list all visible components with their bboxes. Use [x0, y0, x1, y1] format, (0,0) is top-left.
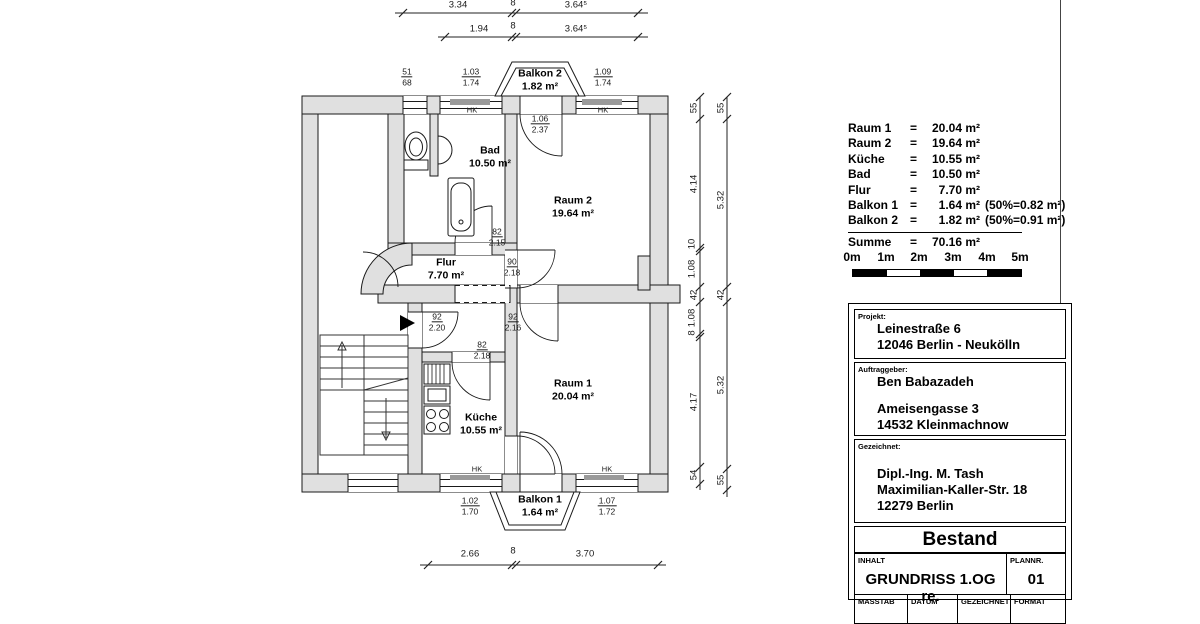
room-label-kueche: Küche10.55 m² [460, 411, 502, 436]
opening-label: 1.091.74 [594, 66, 613, 87]
dim-label: 3.64⁵ [565, 0, 587, 11]
dim-label: 54 [689, 470, 700, 481]
inhalt-cell: INHALT GRUNDRISS 1.OG re. [854, 553, 1007, 595]
sink-icon [438, 136, 452, 164]
hk-label: HK [467, 106, 477, 115]
legend-row: Balkon 1=1.64 m²(50%=0.82 m²) [848, 198, 1065, 213]
room-label-raum1: Raum 120.04 m² [552, 377, 594, 402]
dim-label: 55 [716, 103, 727, 114]
auftraggeber-line: Ameisengasse 3 [855, 401, 1065, 417]
footer-cell: MASSTAB [854, 594, 908, 624]
dim-label: 1.08 [687, 260, 698, 279]
opening-label: 1.031.74 [462, 66, 481, 87]
radiator [582, 99, 622, 105]
sheet-frame-line [1060, 0, 1061, 303]
staircase [320, 335, 408, 455]
opening-label: 822.15 [489, 226, 506, 247]
gezeichnet-line: 12279 Berlin [855, 498, 1065, 514]
opening-label: 1.071.72 [598, 495, 617, 516]
dim-label: 1.94 [470, 24, 489, 35]
room-label-bad: Bad10.50 m² [469, 144, 511, 169]
radiator [450, 99, 490, 105]
bath-fixtures [404, 132, 474, 236]
room-label-raum2: Raum 219.64 m² [552, 194, 594, 219]
scale-tick-label: 1m [877, 250, 894, 264]
footer-cell: GEZEICHNET [957, 594, 1011, 624]
status-label: Bestand [854, 526, 1066, 553]
dim-label: 10 [687, 239, 698, 250]
opening-label: 1.062.37 [531, 113, 550, 134]
dim-label: 3.64⁵ [565, 24, 587, 35]
kitchen-fixtures [424, 364, 450, 434]
legend-row: Bad=10.50 m² [848, 167, 1065, 182]
room-label-balkon1: Balkon 11.64 m² [518, 493, 562, 518]
legend-row: Raum 1=20.04 m² [848, 121, 1065, 136]
hk-label: HK [602, 465, 612, 474]
projekt-label: Projekt: [855, 310, 1065, 321]
area-legend: Raum 1=20.04 m² Raum 2=19.64 m² Küche=10… [848, 121, 1065, 250]
gezeichnet-line: Maximilian-Kaller-Str. 18 [855, 482, 1065, 498]
scale-tick-label: 4m [978, 250, 995, 264]
legend-row: Balkon 2=1.82 m²(50%=0.91 m²) [848, 213, 1065, 228]
projekt-line: 12046 Berlin - Neukölln [855, 337, 1065, 353]
scale-tick-label: 0m [843, 250, 860, 264]
gezeichnet-label: Gezeichnet: [855, 440, 1065, 451]
dim-label: 4.14 [689, 175, 700, 194]
auftraggeber-line: Ben Babazadeh [855, 374, 1065, 390]
radiator [450, 475, 490, 480]
footer-cell: FORMAT [1010, 594, 1066, 624]
opening-label: 822.18 [474, 339, 491, 360]
legend-row: Küche=10.55 m² [848, 152, 1065, 167]
gezeichnet-line: Dipl.-Ing. M. Tash [855, 466, 1065, 482]
hk-label: HK [598, 106, 608, 115]
legend-row: Flur=7.70 m² [848, 183, 1065, 198]
titleblock-auftraggeber-box: Auftraggeber: Ben Babazadeh Ameisengasse… [854, 362, 1066, 436]
opening-label: 922.20 [429, 311, 446, 332]
dim-label: 1.08 [687, 309, 698, 328]
footer-label: MASSTAB [855, 595, 907, 606]
scale-bar-strip [852, 269, 1022, 277]
dim-label: 8 [510, 546, 515, 557]
footer-label: FORMAT [1011, 595, 1065, 606]
room-label-balkon2: Balkon 21.82 m² [518, 67, 562, 92]
plannr-value: 01 [1007, 571, 1065, 588]
radiator [584, 475, 624, 480]
dim-label: 4.17 [689, 393, 700, 412]
room-label-flur: Flur7.70 m² [428, 256, 464, 281]
dim-label: 2.66 [461, 549, 480, 560]
legend-separator [848, 232, 1022, 233]
footer-cell: DATUM [907, 594, 958, 624]
dim-label: 8 [510, 0, 515, 9]
footer-label: GEZEICHNET [958, 595, 1010, 606]
plannr-label: PLANNR. [1007, 554, 1065, 565]
plannr-cell: PLANNR. 01 [1006, 553, 1066, 595]
titleblock-projekt-box: Projekt: Leinestraße 6 12046 Berlin - Ne… [854, 309, 1066, 359]
opening-label: 1.021.70 [461, 495, 480, 516]
legend-total-row: Summe=70.16 m² [848, 235, 1065, 250]
dim-label: 3.70 [576, 549, 595, 560]
auftraggeber-label: Auftraggeber: [855, 363, 1065, 374]
opening-label: 902.18 [504, 256, 521, 277]
dim-label: 5.32 [716, 191, 727, 210]
dim-label: 8 [687, 330, 698, 335]
projekt-line: Leinestraße 6 [855, 321, 1065, 337]
opening-label: 5168 [401, 66, 412, 87]
stair-break-line [364, 378, 408, 390]
dim-label: 55 [716, 475, 727, 486]
floorplan-sheet: { "plan": { "rooms": [ {"name": "Balkon … [0, 0, 1200, 600]
titleblock-gezeichnet-box: Gezeichnet: Dipl.-Ing. M. Tash Maximilia… [854, 439, 1066, 523]
title-block: Projekt: Leinestraße 6 12046 Berlin - Ne… [848, 303, 1072, 600]
auftraggeber-line: 14532 Kleinmachnow [855, 417, 1065, 433]
hk-label: HK [472, 465, 482, 474]
dim-label: 42 [689, 290, 700, 301]
scale-tick-label: 3m [944, 250, 961, 264]
legend-row: Raum 2=19.64 m² [848, 136, 1065, 151]
dim-label: 42 [716, 290, 727, 301]
dim-label: 5.32 [716, 376, 727, 395]
footer-label: DATUM [908, 595, 957, 606]
dim-label: 55 [689, 103, 700, 114]
opening-label: 922.16 [505, 311, 522, 332]
dim-label: 8 [510, 21, 515, 32]
scale-tick-label: 2m [910, 250, 927, 264]
inhalt-label: INHALT [855, 554, 1006, 565]
dim-label: 3.34 [449, 0, 468, 11]
scale-bar: 0m 1m 2m 3m 4m 5m [852, 250, 1020, 278]
scale-tick-label: 5m [1011, 250, 1028, 264]
